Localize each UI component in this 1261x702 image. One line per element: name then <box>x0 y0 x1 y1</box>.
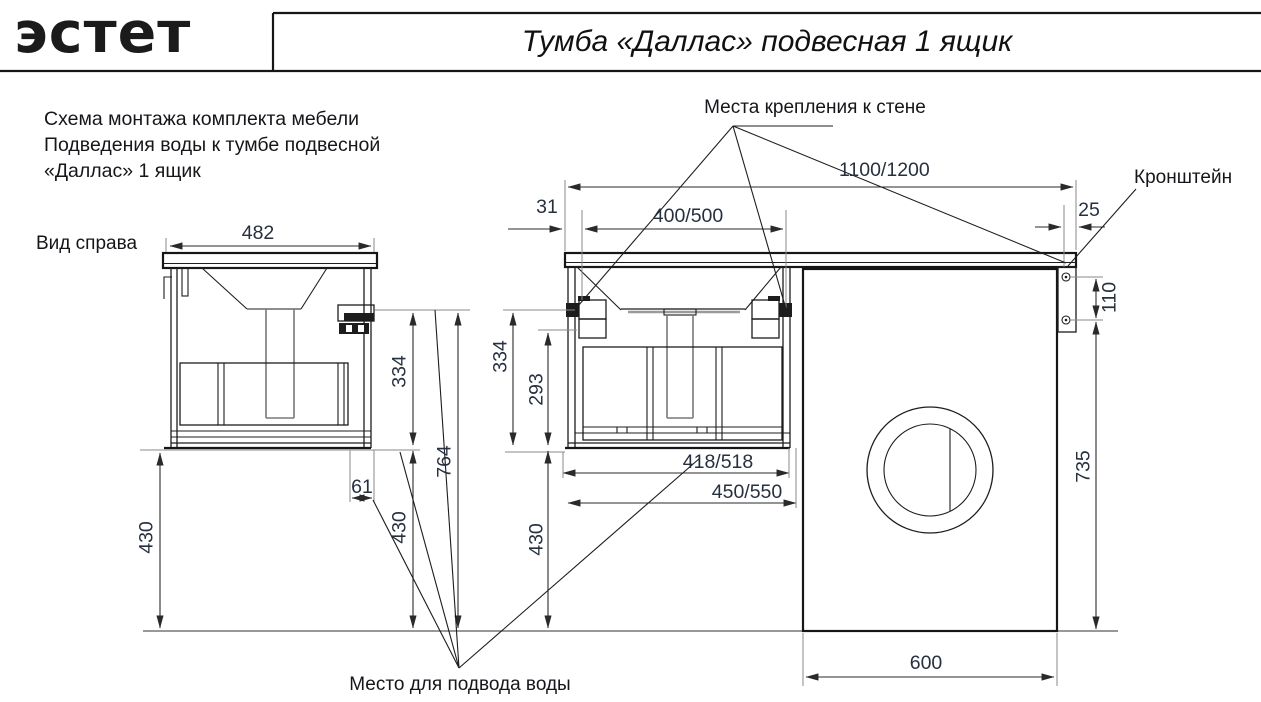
dim-counter-width: 1100/1200 <box>839 159 929 182</box>
description-block: Схема монтажа комплекта мебели Подведени… <box>44 106 380 184</box>
view-label: Вид справа <box>36 233 137 255</box>
description-line-1: Схема монтажа комплекта мебели <box>44 106 380 132</box>
dim-front-upper: 334 <box>490 312 513 402</box>
description-line-2: Подведения воды к тумбе подвесной <box>44 132 380 158</box>
washing-machine <box>803 269 1057 631</box>
dim-front-lower: 430 <box>526 495 549 585</box>
water-supply-label: Место для подвода воды <box>310 674 610 696</box>
dim-washer-height: 735 <box>1073 422 1096 512</box>
bracket-label: Кронштейн <box>1134 167 1232 189</box>
description-line-3: «Даллас» 1 ящик <box>44 158 380 184</box>
side-view <box>163 253 377 448</box>
mount-bracket-left <box>566 296 606 338</box>
dim-side-upper: 334 <box>389 327 412 417</box>
front-view <box>565 253 1076 448</box>
wall-mount-label: Места крепления к стене <box>660 97 970 119</box>
dim-front-inner: 293 <box>526 345 549 435</box>
washer-door <box>867 407 993 533</box>
brand-logo: эстет <box>12 4 264 66</box>
dim-side-width: 482 <box>213 222 303 245</box>
leader-lines <box>373 126 1136 668</box>
dim-cabinet-width: 450/550 <box>702 481 792 504</box>
dim-side-lower: 430 <box>389 483 412 573</box>
dimension-lines <box>160 187 1105 677</box>
side-wall-bracket <box>338 305 374 334</box>
dim-bracket-offset: 25 <box>1044 199 1134 222</box>
title-bar: Тумба «Даллас» подвесная 1 ящик <box>273 13 1261 71</box>
dim-bracket-screws: 110 <box>1099 253 1122 343</box>
dim-washer-width: 600 <box>881 652 971 675</box>
dim-side-left-height: 430 <box>136 493 159 583</box>
front-drain-pipe <box>667 315 693 418</box>
logo-text: эстет <box>14 4 191 66</box>
page-title: Тумба «Даллас» подвесная 1 ящик <box>522 25 1013 59</box>
dim-side-total: 764 <box>434 417 457 507</box>
dim-mount-spacing: 400/500 <box>643 205 733 228</box>
dim-counter-left-offset: 31 <box>502 196 592 219</box>
dim-drawer-width: 418/518 <box>673 451 763 474</box>
drawing-page: эстет Тумба «Даллас» подвесная 1 ящик Сх… <box>0 0 1261 702</box>
